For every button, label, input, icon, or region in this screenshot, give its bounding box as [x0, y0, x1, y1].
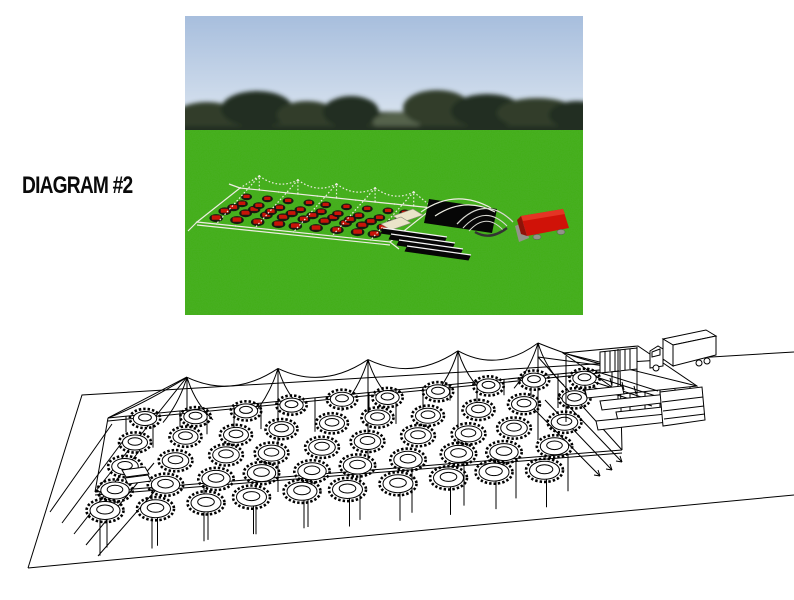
stairs: [660, 387, 705, 426]
render-photo: [185, 16, 583, 315]
truck-wheel: [704, 358, 710, 364]
truck-wheel: [696, 360, 702, 366]
truck-wheel: [533, 234, 541, 239]
diagram-page: DIAGRAM #2: [0, 0, 794, 600]
service-mats: [122, 467, 151, 484]
truck-wheel: [557, 229, 565, 234]
diagram-label: DIAGRAM #2: [22, 172, 132, 200]
wireframe-drawing: [0, 320, 794, 600]
box-truck-wireframe: [650, 330, 716, 371]
truck-wheel: [653, 365, 659, 371]
